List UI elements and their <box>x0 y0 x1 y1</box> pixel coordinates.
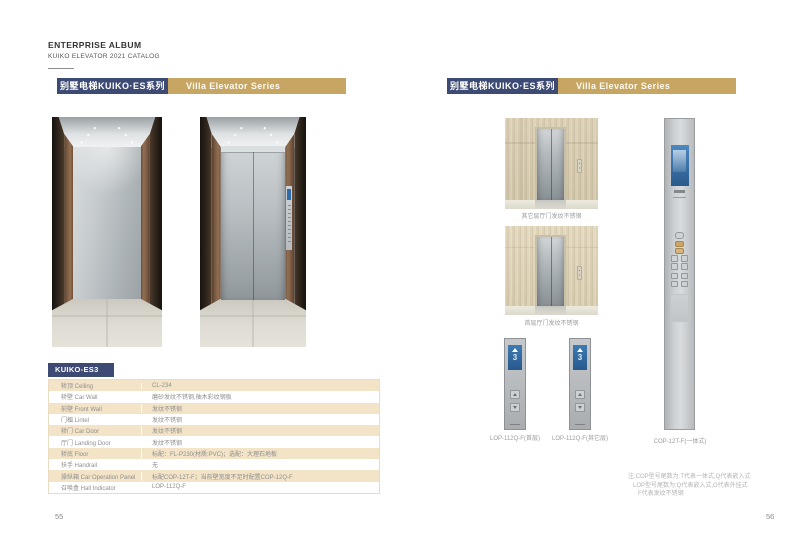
up-arrow-icon <box>577 348 583 352</box>
lop-down-button <box>510 403 520 412</box>
cab-car-doors <box>221 146 286 300</box>
spec-label: 召唤盒 Hall Indicator <box>49 483 141 492</box>
cop-alarm-button <box>675 241 685 247</box>
hall-call-panel <box>577 266 583 280</box>
cop-button-row <box>671 273 688 279</box>
spec-row: 扶手 Handrail无 <box>49 459 379 470</box>
cop-caption: COP-12T-F(一体式) <box>646 436 714 445</box>
spec-value: 磨砂发纹不锈钢,柚木彩纹钢板 <box>141 392 379 401</box>
hall-call-panel <box>577 159 583 174</box>
cab-door-render <box>200 117 306 347</box>
door-reflection <box>535 306 567 315</box>
landing-door-photo-first-floor <box>505 226 598 315</box>
spec-label: 轿门 Car Door <box>49 426 141 435</box>
page-number-right: 56 <box>766 512 774 521</box>
cop-logo-mark <box>674 190 686 193</box>
spec-value: 发纹不锈钢 <box>141 426 379 435</box>
spec-label: 轿顶 Ceiling <box>49 381 141 390</box>
lop-up-button <box>510 390 520 399</box>
series-title-zh: 别墅电梯KUIKO·ES系列 <box>447 78 558 94</box>
cab-cop-panel <box>286 186 292 250</box>
catalog-spread: ENTERPRISE ALBUM KUIKO ELEVATOR 2021 CAT… <box>0 0 806 550</box>
spec-label: 轿壁 Car Wall <box>49 392 141 401</box>
note-line: F代表发纹不锈钢 <box>638 490 750 499</box>
spec-label: 门楣 Lintel <box>49 415 141 424</box>
album-title: ENTERPRISE ALBUM <box>48 40 141 50</box>
spec-label: 操纵箱 Car Operation Panel <box>49 472 141 481</box>
spec-table: 轿顶 CeilingCL-234轿壁 Car Wall磨砂发纹不锈钢,柚木彩纹钢… <box>48 379 380 494</box>
lop-panel-first-floor: 3 <box>504 338 526 430</box>
lop-brand-mark <box>575 424 585 425</box>
spec-label: 扶手 Handrail <box>49 460 141 469</box>
spec-row: 操纵箱 Car Operation Panel标配COP-12T-F；当前壁宽度… <box>49 470 379 481</box>
album-subtitle: KUIKO ELEVATOR 2021 CATALOG <box>48 53 160 60</box>
lop-display: 3 <box>573 345 588 369</box>
series-banner-right: 别墅电梯KUIKO·ES系列 Villa Elevator Series <box>447 78 736 94</box>
cop-display-screen <box>671 145 689 185</box>
cab-back-wall <box>73 147 140 299</box>
spec-label: 轿底 Floor <box>49 449 141 458</box>
series-title-en: Villa Elevator Series <box>168 78 346 94</box>
spec-value: 发纹不锈钢 <box>141 438 379 447</box>
series-banner-left: 别墅电梯KUIKO·ES系列 Villa Elevator Series <box>57 78 346 94</box>
lop-floor-number: 3 <box>573 353 588 362</box>
cab-floor <box>52 299 162 347</box>
spec-value: 发纹不锈钢 <box>141 404 379 413</box>
lop-up-button <box>575 390 585 399</box>
spec-label: 前壁 Front Wall <box>49 404 141 413</box>
cop-button <box>675 232 685 239</box>
door-caption-2: 首层厅门发纹不锈钢 <box>498 318 605 327</box>
landing-doors <box>535 127 567 200</box>
spec-row: 召唤盒 Hall IndicatorLOP-112Q-F <box>49 482 379 493</box>
footnotes: 注:COP型号尾数为:T代表一体式,Q代表嵌入式LOP型号尾数为:Q代表嵌入式,… <box>628 473 750 499</box>
lop-display: 3 <box>508 345 523 369</box>
spec-label: 厅门 Landing Door <box>49 438 141 447</box>
series-title-zh: 别墅电梯KUIKO·ES系列 <box>57 78 168 94</box>
cop-button-row <box>671 255 688 261</box>
spec-value: 发纹不锈钢 <box>141 415 379 424</box>
spec-model-header: KUIKO-ES3 <box>48 363 114 377</box>
speaker-grill-icon <box>674 207 686 211</box>
spec-value: LOP-112Q-F <box>141 484 379 490</box>
spec-row: 门楣 Lintel发纹不锈钢 <box>49 414 379 425</box>
spec-row: 轿壁 Car Wall磨砂发纹不锈钢,柚木彩纹钢板 <box>49 391 379 402</box>
door-reflection <box>535 200 567 209</box>
lop-floor-number: 3 <box>508 353 523 362</box>
up-arrow-icon <box>578 393 582 396</box>
landing-door-photo-other-floors <box>505 118 598 209</box>
lop-caption-1: LOP-112Q-F(首层) <box>480 433 550 442</box>
spec-row: 轿门 Car Door发纹不锈钢 <box>49 425 379 436</box>
up-arrow-icon <box>513 393 517 396</box>
spec-row: 轿底 Floor标配：FL-P230(材质:PVC)；选配：大理石地板 <box>49 448 379 459</box>
spec-row: 厅门 Landing Door发纹不锈钢 <box>49 436 379 447</box>
cop-logo-text <box>673 197 687 198</box>
cop-panel <box>664 118 695 430</box>
spec-row: 前壁 Front Wall发纹不锈钢 <box>49 403 379 414</box>
spec-value: CL-234 <box>141 383 379 389</box>
cop-service-plate <box>670 294 690 322</box>
lop-caption-2: LOP-112Q-F(其它层) <box>545 433 615 442</box>
landing-doors <box>535 235 567 306</box>
cab-interior-render <box>52 117 162 347</box>
cab-floor <box>200 299 306 347</box>
cop-button-row <box>671 263 688 269</box>
note-line: 注:COP型号尾数为:T代表一体式,Q代表嵌入式 <box>628 473 750 482</box>
series-title-en: Villa Elevator Series <box>558 78 736 94</box>
header-rule <box>48 68 74 69</box>
spec-value: 无 <box>141 460 379 469</box>
note-line: LOP型号尾数为:Q代表嵌入式,G代表外挂式 <box>633 482 750 491</box>
cop-button <box>675 248 685 254</box>
lop-down-button <box>575 403 585 412</box>
up-arrow-icon <box>512 348 518 352</box>
cop-screen-icon <box>287 189 291 201</box>
spec-value: 标配COP-12T-F；当前壁宽度不足时配置COP-12Q-F <box>141 472 379 481</box>
lop-brand-mark <box>510 424 520 425</box>
spec-value: 标配：FL-P230(材质:PVC)；选配：大理石地板 <box>141 449 379 458</box>
page-number-left: 55 <box>55 512 63 521</box>
down-arrow-icon <box>578 406 582 409</box>
lop-panel-other-floors: 3 <box>569 338 591 430</box>
spec-row: 轿顶 CeilingCL-234 <box>49 380 379 391</box>
door-caption-1: 其它层厅门发纹不锈钢 <box>498 211 605 220</box>
cop-button-column <box>288 205 290 245</box>
cop-button-row <box>671 281 688 287</box>
down-arrow-icon <box>513 406 517 409</box>
